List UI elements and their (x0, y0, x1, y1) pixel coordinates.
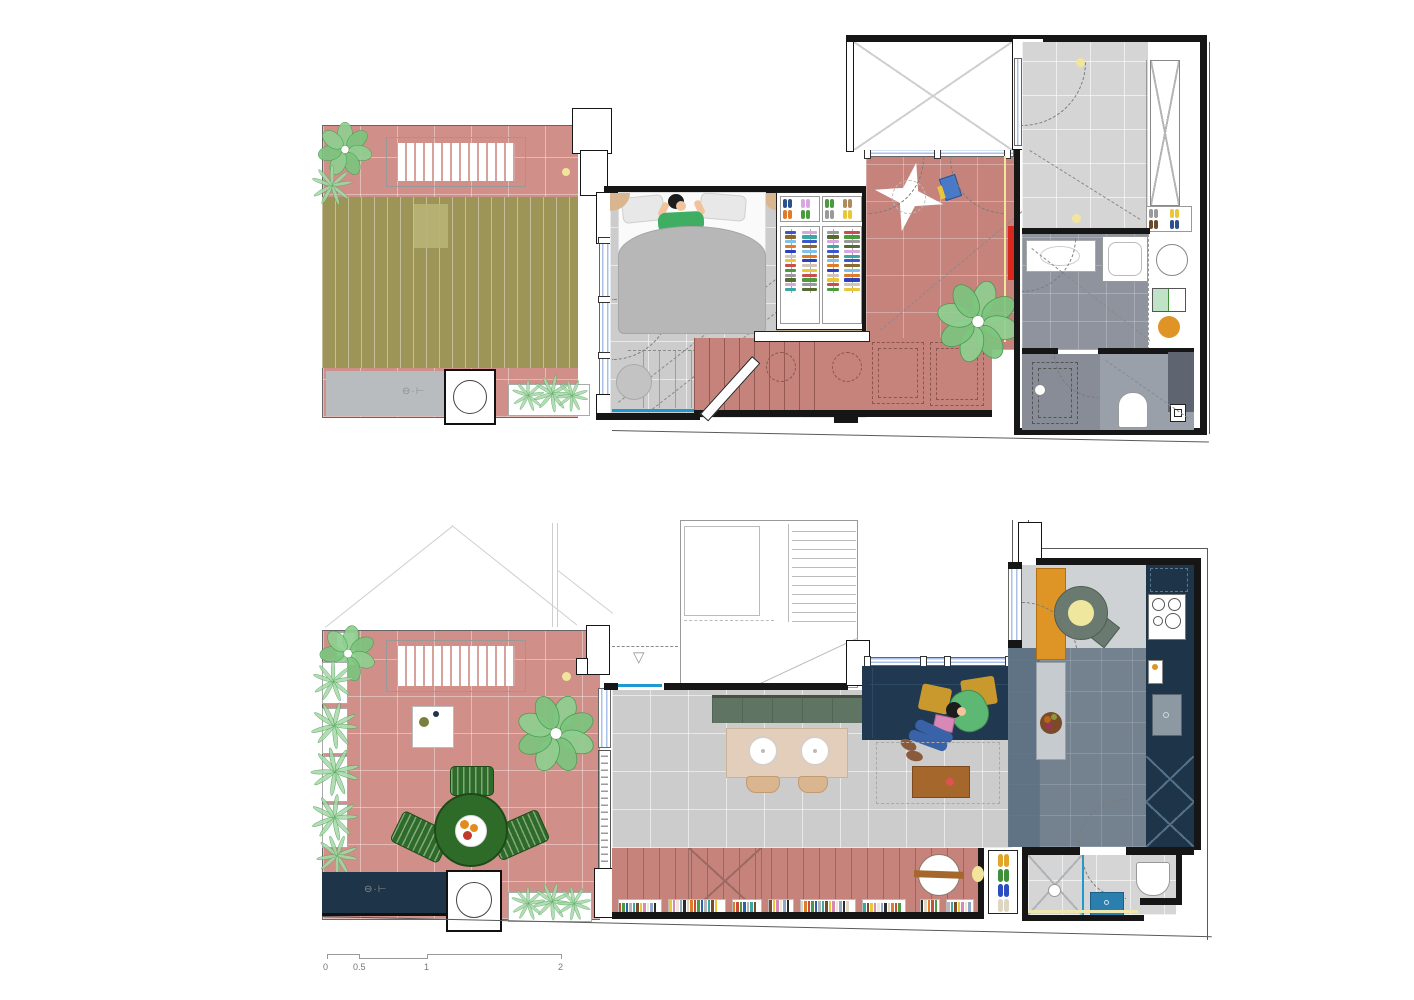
slipper-item (801, 199, 805, 208)
slipper-pair (1170, 209, 1190, 219)
slipper-item (1170, 209, 1174, 218)
clothes-item (844, 269, 860, 272)
book-spine (870, 903, 873, 912)
clothes-item (785, 283, 796, 286)
slipper-item (830, 199, 834, 208)
wall (664, 683, 848, 690)
book-spine (881, 903, 883, 912)
void-space (854, 42, 1012, 150)
clothes-item (827, 259, 839, 262)
book-spine (754, 902, 756, 912)
slipper-pair (783, 210, 800, 220)
roof-outline (557, 570, 613, 614)
slipper-pair (1149, 220, 1169, 230)
shoe-pair (998, 854, 1009, 867)
book-spine (832, 901, 835, 912)
ceiling-light (1072, 214, 1081, 223)
book-spine (680, 900, 682, 912)
wall (1022, 915, 1144, 921)
slipper-item (830, 210, 834, 219)
wall-light (972, 866, 984, 882)
clothes-item (785, 259, 796, 262)
fruit (470, 824, 478, 832)
wall (1126, 847, 1194, 855)
downlight-below (766, 352, 796, 382)
clothes-item (844, 274, 860, 277)
clothes-item (785, 250, 796, 253)
book-spine (836, 901, 838, 912)
dining-chair (746, 776, 780, 793)
slipper-pair (1149, 209, 1169, 219)
boundary-line (1028, 548, 1208, 549)
bowl (419, 717, 429, 727)
entry-door (618, 684, 662, 687)
wardrobe-rail (822, 226, 862, 324)
wall (586, 625, 610, 675)
stairwell-skylight (684, 526, 760, 616)
book-spine (921, 900, 923, 912)
wall (1008, 640, 1022, 648)
slipper-pair (843, 199, 860, 209)
dressing-window (1014, 58, 1022, 146)
wall (604, 683, 618, 690)
coffee-table-dot (946, 778, 954, 786)
wall (1044, 35, 1207, 42)
wardrobe-shoes-shelf (822, 196, 862, 222)
slipper-pair (801, 199, 818, 209)
bookshelf (946, 899, 974, 912)
bookshelf (862, 899, 906, 912)
slipper-pair (783, 199, 800, 209)
bookshelf (800, 899, 856, 912)
scale-bar-segment (427, 954, 562, 959)
book-spine (711, 900, 714, 912)
closet-divider (1146, 60, 1147, 208)
clothes-item (802, 278, 817, 281)
book-spine (747, 902, 749, 912)
wardrobe-shoes-shelf (780, 196, 820, 222)
slipper-item (1175, 220, 1179, 229)
clothes-item (802, 269, 817, 272)
hanging-clothes (782, 229, 800, 293)
shoe-pair (998, 899, 1009, 912)
void-below-outline (878, 348, 918, 398)
slipper-item (1175, 209, 1179, 218)
stair-treads (792, 524, 856, 622)
book-spine (787, 899, 789, 912)
book-spine (888, 903, 890, 912)
book-spine (769, 899, 772, 912)
heating-strip (1028, 910, 1138, 913)
scale-tick-label: 0.5 (353, 962, 366, 972)
slipper-item (806, 210, 810, 219)
book-spine (863, 903, 866, 912)
book-spine (935, 900, 937, 912)
sideboard (712, 695, 862, 723)
shoe-item (998, 869, 1003, 882)
wall (1036, 558, 1196, 565)
clothes-item (785, 278, 796, 281)
cistern-unit (1168, 352, 1194, 412)
closet-doors (1150, 60, 1180, 206)
book-spine (619, 903, 621, 912)
book-spine (687, 900, 689, 912)
coffee-table (912, 766, 970, 798)
clothes-item (844, 231, 860, 234)
book-spine (683, 900, 686, 912)
book-spine (633, 903, 635, 912)
wardrobe-rail (780, 226, 820, 324)
clothes-item (785, 269, 796, 272)
neighbor-wall-outline (552, 523, 558, 627)
book-spine (697, 900, 700, 912)
green-roof (322, 197, 578, 368)
book-spine (804, 901, 807, 912)
book-spine (773, 899, 775, 912)
clothes-item (827, 278, 839, 281)
clothes-item (844, 264, 860, 267)
clothes-item (785, 264, 796, 267)
book-spine (783, 899, 786, 912)
slipper-item (848, 210, 852, 219)
book-spine (704, 900, 707, 912)
book-spine (951, 902, 953, 912)
sink-drain (1163, 712, 1169, 718)
plate-center (761, 749, 765, 753)
skylight-louver-grate (386, 137, 526, 187)
shoe-pair (998, 884, 1009, 897)
book-spine (801, 901, 803, 912)
clothes-item (844, 255, 860, 258)
slipper-item (783, 199, 787, 208)
slipper-pair (1170, 220, 1190, 230)
book-spine (690, 900, 693, 912)
slipper-item (1149, 209, 1153, 218)
book-spine (818, 901, 821, 912)
scale-bar-segment (360, 958, 427, 959)
book-spine (776, 899, 779, 912)
book-spine (647, 903, 649, 912)
grass-icon (309, 163, 355, 214)
clothes-item (844, 259, 860, 262)
burner (1152, 598, 1165, 611)
book-spine (958, 902, 960, 912)
book-spine (650, 903, 653, 912)
hanging-clothes (843, 229, 861, 293)
book-spine (808, 901, 810, 912)
clothes-item (827, 250, 839, 253)
slipper-item (1154, 209, 1158, 218)
wall (1176, 855, 1182, 905)
kitchen-window (1008, 568, 1022, 644)
wall (576, 658, 588, 675)
clothes-item (802, 235, 817, 238)
sink-drain (1104, 900, 1109, 905)
book-spine (708, 900, 710, 912)
clothes-item (827, 231, 839, 234)
scale-tick-label: 0 (323, 962, 328, 972)
book-spine (694, 900, 696, 912)
plant-icon (931, 275, 1025, 374)
fruit (463, 831, 472, 840)
clothes-item (844, 245, 860, 248)
clothes-item (827, 274, 839, 277)
clothes-item (802, 250, 817, 253)
book-spine (928, 900, 930, 912)
grass-icon (554, 378, 590, 419)
book-spine (811, 901, 814, 912)
wall (1022, 847, 1080, 855)
garden-bench (450, 766, 494, 796)
clothes-item (844, 288, 860, 291)
clothes-item (827, 264, 839, 267)
living-room-window (866, 657, 1012, 666)
base-cabinet (1146, 756, 1194, 802)
hanging-clothes (824, 229, 842, 293)
book-spine (626, 903, 628, 912)
wall (846, 40, 854, 152)
shower-drain (1048, 884, 1061, 897)
person-sleeping-face (676, 201, 686, 211)
toilet (1136, 862, 1170, 896)
person-face (957, 707, 966, 716)
fruit (1044, 716, 1051, 723)
bookshelf (618, 899, 662, 912)
book-spine (715, 900, 717, 912)
book-spine (884, 903, 887, 912)
clothes-item (785, 288, 796, 291)
book-spine (843, 901, 845, 912)
dining-chair (798, 776, 828, 793)
boundary-line (1209, 42, 1210, 434)
slipper-item (843, 210, 847, 219)
slipper-item (1154, 220, 1158, 229)
book-spine (622, 903, 625, 912)
clothes-item (844, 278, 860, 281)
clothes-item (827, 288, 839, 291)
book-spine (654, 903, 656, 912)
book-spine (895, 903, 897, 912)
shoe-item (998, 854, 1003, 867)
terrace-door-glazing (598, 688, 611, 748)
book-spine (733, 902, 735, 912)
book-spine (877, 903, 880, 912)
clothes-item (844, 240, 860, 243)
wall (1194, 558, 1201, 850)
shoe-item (1004, 884, 1009, 897)
slipper-pair (801, 210, 818, 220)
shoe-rack (988, 850, 1018, 914)
armchair-cushion (1068, 600, 1094, 626)
book-spine (740, 902, 742, 912)
shoe-pair (998, 869, 1009, 882)
clothes-item (827, 240, 839, 243)
wall (572, 108, 612, 154)
sliding-door-leaf (754, 331, 870, 342)
slipper-item (788, 199, 792, 208)
book-spine (736, 902, 739, 912)
fruit (1046, 723, 1052, 729)
wall-cabinet-outline (1150, 568, 1188, 592)
clothes-item (802, 264, 817, 267)
shower-tray-inner (1108, 242, 1142, 276)
roof-outline (325, 526, 453, 628)
book-spine (954, 902, 957, 912)
clothes-item (802, 245, 817, 248)
clothes-item (827, 255, 839, 258)
book-spine (874, 903, 876, 912)
entrance-arrow-icon: ▽ (633, 650, 645, 665)
bookshelf (732, 899, 762, 912)
book-spine (839, 901, 842, 912)
clothes-item (802, 274, 817, 277)
book-spine (701, 900, 703, 912)
shoe-item (1004, 854, 1009, 867)
stool (1158, 316, 1180, 338)
roof-skylight (414, 204, 448, 248)
burner (1168, 598, 1181, 611)
book-spine (891, 903, 894, 912)
downlight-below (832, 352, 862, 382)
shoe-item (1004, 899, 1009, 912)
scale-tick-label: 2 (558, 962, 563, 972)
duvet (618, 226, 766, 334)
roof-outline (451, 525, 577, 625)
book-spine (867, 903, 869, 912)
clothes-item (785, 240, 796, 243)
clothes-item (827, 283, 839, 286)
wall (1008, 562, 1022, 569)
wall (612, 912, 984, 919)
plate-center (813, 749, 817, 753)
book-spine (898, 903, 901, 912)
wall (594, 868, 614, 918)
coffee-machine-dot (1152, 664, 1158, 670)
pouf (616, 364, 652, 400)
clothes-item (827, 235, 839, 238)
slipper-item (801, 210, 805, 219)
skylight-louver-grate (386, 640, 526, 692)
bedroom-bottom-wall (596, 413, 700, 420)
slipper-pair (825, 210, 842, 220)
book-spine (750, 902, 753, 912)
tap-icon: ⊖·⊢ (364, 884, 387, 895)
sofa-arm-line (872, 668, 873, 738)
clothes-item (827, 245, 839, 248)
wall (1200, 35, 1207, 435)
slipper-item (825, 210, 829, 219)
scale-tick-label: 1 (424, 962, 429, 972)
slipper-item (825, 199, 829, 208)
slipper-pair (825, 199, 842, 209)
round-basin (1156, 244, 1188, 276)
book-spine (822, 901, 824, 912)
shoe-item (1004, 869, 1009, 882)
slipper-item (1170, 220, 1174, 229)
slipper-item (783, 210, 787, 219)
fruit (460, 820, 469, 829)
clothes-item (802, 240, 817, 243)
clothes-item (827, 269, 839, 272)
wall-notch (834, 410, 858, 423)
fruit (1051, 714, 1057, 720)
clothes-item (802, 259, 817, 262)
book-spine (924, 900, 927, 912)
boundary-line (1012, 520, 1013, 568)
book-spine (968, 902, 971, 912)
bookshelf (668, 899, 726, 912)
book-spine (743, 902, 746, 912)
clothes-item (802, 283, 817, 286)
book-spine (669, 900, 672, 912)
book-spine (676, 900, 679, 912)
book-spine (829, 901, 831, 912)
book-spine (640, 903, 642, 912)
bookshelf (768, 899, 794, 912)
book-spine (961, 902, 964, 912)
kitchen-island (1036, 662, 1066, 760)
wall (1022, 855, 1028, 917)
wall (1014, 150, 1020, 435)
book-spine (965, 902, 967, 912)
clothes-item (785, 255, 796, 258)
book-spine (846, 901, 849, 912)
clothes-item (785, 235, 796, 238)
clothes-item (785, 245, 796, 248)
slipper-item (788, 210, 792, 219)
boundary-line (1207, 548, 1208, 940)
slipper-item (843, 199, 847, 208)
book-spine (636, 903, 639, 912)
hanging-clothes (801, 229, 819, 293)
stair-dash (684, 620, 774, 621)
burner (1165, 613, 1181, 629)
wall-light (562, 672, 571, 681)
book-spine (643, 903, 646, 912)
floor-plan-canvas: ⊖·⊢ (0, 0, 1414, 1000)
clothes-item (844, 283, 860, 286)
base-cabinet (1146, 802, 1194, 847)
slipper-item (806, 199, 810, 208)
clothes-item (802, 231, 817, 234)
clothes-item (802, 288, 817, 291)
bookshelf (920, 899, 940, 912)
scale-bar-segment (327, 954, 360, 959)
louvered-shutter (598, 750, 611, 870)
book-spine (931, 900, 934, 912)
shower-drain (1034, 384, 1046, 396)
book-spine (673, 900, 675, 912)
book-spine (947, 902, 950, 912)
well-circle (453, 380, 487, 414)
book-spine (780, 899, 782, 912)
slipper-item (848, 199, 852, 208)
ceiling-light (562, 168, 570, 176)
washing-machine-door (1153, 289, 1169, 311)
slipper-shelf (1146, 206, 1192, 232)
clothes-item (844, 235, 860, 238)
clothes-item (802, 255, 817, 258)
well-circle (456, 882, 492, 918)
slipper-pair (843, 210, 860, 220)
plant-icon (511, 689, 601, 784)
shoe-item (998, 884, 1003, 897)
clothes-item (844, 250, 860, 253)
stair-stringer (788, 524, 789, 622)
shoe-item (998, 899, 1003, 912)
book-spine (629, 903, 632, 912)
clothes-item (785, 231, 796, 234)
